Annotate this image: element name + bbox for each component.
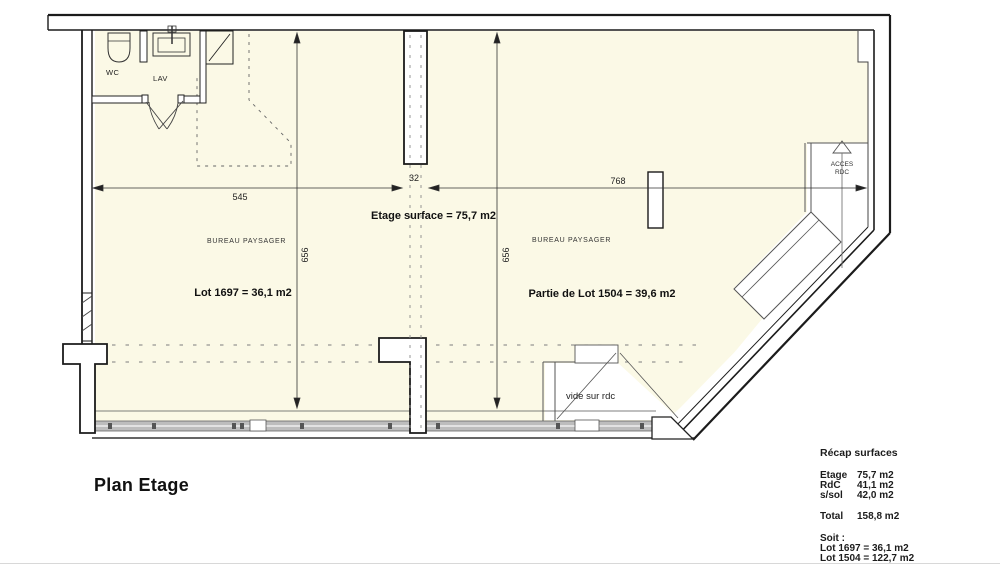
window-mullion-box	[250, 420, 266, 431]
floor-plan-page: WC LAV BUREAU PAYSAGER BUREAU PAYSAGER E…	[0, 0, 1000, 566]
label-acces-line2: RDC	[835, 169, 849, 176]
wall-hatch	[82, 296, 92, 331]
dim-32: 32	[409, 173, 419, 183]
recap-row: RdC 41,1 m2	[820, 481, 990, 491]
left-wall	[82, 30, 92, 344]
recap-soit-block: Soit : Lot 1697 = 36,1 m2 Lot 1504 = 122…	[820, 534, 990, 564]
label-etage-surface: Etage surface = 75,7 m2	[371, 210, 496, 222]
room-label-bureau-left: BUREAU PAYSAGER	[207, 238, 286, 245]
dim-656-left: 656	[300, 247, 310, 262]
plan-title: Plan Etage	[94, 475, 189, 496]
recap-title: Récap surfaces	[820, 448, 990, 458]
window-mullion-box	[575, 420, 599, 431]
column	[648, 172, 663, 228]
dim-656-right: 656	[501, 247, 511, 262]
room-label-lav: LAV	[153, 74, 168, 83]
label-vide-sur-rdc: vide sur rdc	[566, 391, 615, 402]
central-partition-wall	[404, 31, 427, 164]
recap-row-value: 42,0 m2	[857, 491, 894, 501]
dim-768: 768	[610, 176, 625, 186]
room-label-wc: WC	[106, 68, 119, 77]
recap-surfaces-panel: Récap surfaces Etage 75,7 m2 RdC 41,1 m2…	[820, 448, 990, 564]
recap-total-value: 158,8 m2	[857, 512, 899, 522]
recap-total-row: Total 158,8 m2	[820, 512, 990, 522]
label-acces-line1: ACCES	[831, 161, 854, 168]
recap-total-label: Total	[820, 512, 857, 522]
label-lot-right: Partie de Lot 1504 = 39,6 m2	[528, 288, 675, 300]
page-bottom-divider	[0, 563, 1000, 564]
recap-row: s/sol 42,0 m2	[820, 491, 990, 501]
corner-step-block	[652, 417, 693, 439]
room-label-bureau-right: BUREAU PAYSAGER	[532, 237, 611, 244]
recap-row-label: s/sol	[820, 491, 857, 501]
dim-545: 545	[232, 192, 247, 202]
recap-row: Etage 75,7 m2	[820, 471, 990, 481]
label-lot-left: Lot 1697 = 36,1 m2	[194, 287, 292, 299]
floor-area	[95, 31, 868, 421]
window-band	[83, 420, 694, 438]
